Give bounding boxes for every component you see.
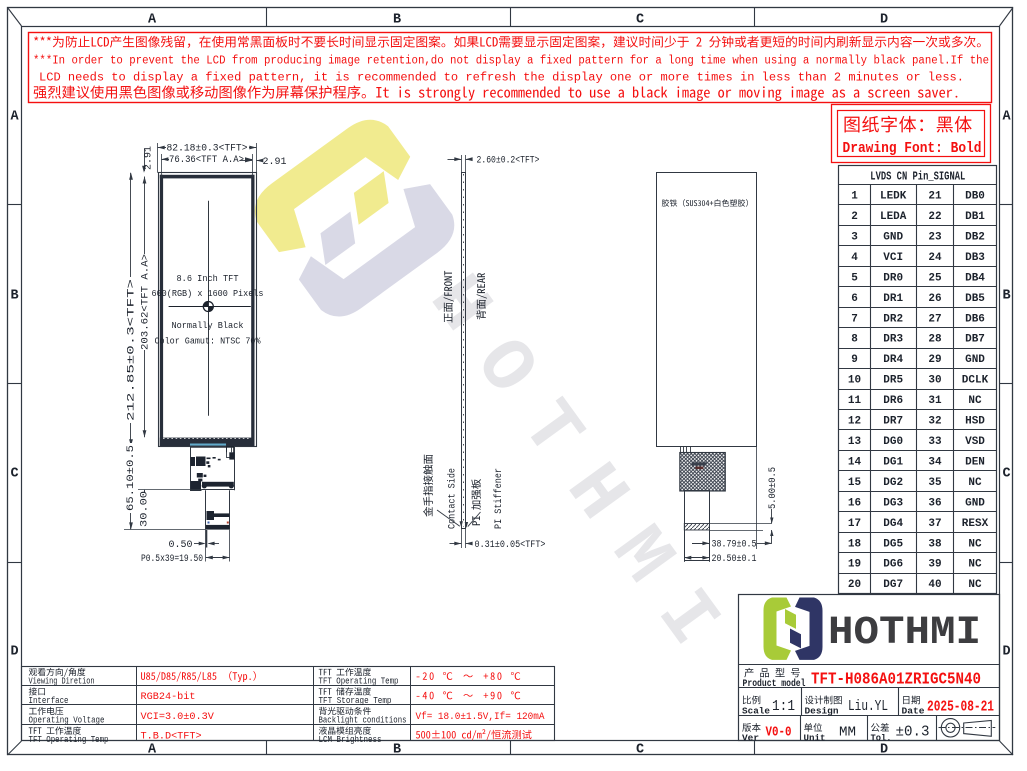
svg-text:DR5: DR5 xyxy=(883,375,903,387)
svg-text:PI Stiffener: PI Stiffener xyxy=(493,468,505,529)
svg-text:28: 28 xyxy=(928,334,942,346)
svg-text:22: 22 xyxy=(928,211,941,223)
svg-text:39: 39 xyxy=(928,559,941,571)
svg-text:NC: NC xyxy=(968,477,982,489)
svg-text:DB3: DB3 xyxy=(965,252,985,264)
svg-text:LCM Brightness: LCM Brightness xyxy=(319,735,382,745)
svg-text:76.36<TFT A.A>: 76.36<TFT A.A> xyxy=(169,155,244,166)
svg-text:38.79±0.5: 38.79±0.5 xyxy=(712,540,757,551)
svg-text:LEDA: LEDA xyxy=(880,211,907,223)
svg-text:Drawing Font: Bold: Drawing Font: Bold xyxy=(843,141,982,157)
svg-text:DG5: DG5 xyxy=(883,538,903,550)
svg-text:NC: NC xyxy=(968,559,982,571)
svg-text:37: 37 xyxy=(928,518,941,530)
svg-text:VSD: VSD xyxy=(965,436,985,448)
svg-text:5.00±0.5: 5.00±0.5 xyxy=(768,467,779,509)
svg-text:DR4: DR4 xyxy=(883,354,903,366)
svg-text:32: 32 xyxy=(928,416,941,428)
svg-text:***In order to prevent the LCD: ***In order to prevent the LCD from prod… xyxy=(33,55,989,68)
svg-text:A: A xyxy=(1002,110,1011,125)
svg-text:21: 21 xyxy=(928,191,942,203)
svg-text:TFT-H086A01ZRIGC5N40: TFT-H086A01ZRIGC5N40 xyxy=(811,670,981,689)
svg-text:DEN: DEN xyxy=(965,457,985,469)
svg-text:4: 4 xyxy=(851,252,858,264)
svg-text:2025-08-21: 2025-08-21 xyxy=(927,700,994,716)
svg-text:8: 8 xyxy=(851,334,858,346)
svg-text:1:1: 1:1 xyxy=(772,699,795,715)
svg-text:LEDK: LEDK xyxy=(880,191,907,203)
svg-text:0.50: 0.50 xyxy=(169,540,193,551)
svg-text:30: 30 xyxy=(928,375,941,387)
svg-text:DG0: DG0 xyxy=(883,436,903,448)
svg-text:Ver: Ver xyxy=(742,732,759,743)
svg-text:B: B xyxy=(1002,289,1010,304)
svg-text:82.18±0.3<TFT>: 82.18±0.3<TFT> xyxy=(167,144,248,155)
svg-text:DG6: DG6 xyxy=(883,559,903,571)
svg-text:DR1: DR1 xyxy=(883,293,903,305)
svg-text:0.31±0.05<TFT>: 0.31±0.05<TFT> xyxy=(475,540,546,551)
svg-text:DCLK: DCLK xyxy=(962,375,989,387)
svg-text:65.10±0.5: 65.10±0.5 xyxy=(126,445,137,511)
svg-text:10: 10 xyxy=(848,375,861,387)
svg-text:D: D xyxy=(10,645,18,660)
svg-text:25: 25 xyxy=(928,272,942,284)
svg-text:A: A xyxy=(10,110,19,125)
svg-text:DB1: DB1 xyxy=(965,211,985,223)
svg-text:8.6 Inch TFT: 8.6 Inch TFT xyxy=(177,274,240,284)
svg-text:NC: NC xyxy=(968,395,982,407)
svg-text:Design: Design xyxy=(805,706,839,717)
svg-text:40: 40 xyxy=(928,579,941,591)
svg-text:Contact Side: Contact Side xyxy=(447,468,459,529)
svg-text:TFT Operating Temp: TFT Operating Temp xyxy=(319,676,399,686)
svg-text:DB6: DB6 xyxy=(965,313,985,325)
svg-text:Interface: Interface xyxy=(29,696,69,706)
svg-text:Product model: Product model xyxy=(743,678,806,690)
svg-text:14: 14 xyxy=(848,457,862,469)
svg-text:GND: GND xyxy=(965,354,985,366)
svg-text:TFT Operating Temp: TFT Operating Temp xyxy=(29,735,109,745)
svg-text:19: 19 xyxy=(848,559,861,571)
svg-text:27: 27 xyxy=(928,313,941,325)
svg-text:V0-0: V0-0 xyxy=(766,726,792,741)
svg-text:DG3: DG3 xyxy=(883,497,903,509)
svg-text:DG2: DG2 xyxy=(883,477,903,489)
svg-text:C: C xyxy=(636,743,644,758)
svg-text:600(RGB) x 1600 Pixels: 600(RGB) x 1600 Pixels xyxy=(152,289,264,299)
svg-text:18: 18 xyxy=(848,538,862,550)
svg-text:23: 23 xyxy=(928,232,942,244)
svg-text:DR6: DR6 xyxy=(883,395,903,407)
svg-text:Vf= 18.0±1.5V,If= 120mA: Vf= 18.0±1.5V,If= 120mA xyxy=(416,711,546,723)
svg-text:31: 31 xyxy=(928,395,942,407)
svg-text:DB0: DB0 xyxy=(965,191,985,203)
svg-text:11: 11 xyxy=(848,395,862,407)
svg-text:B: B xyxy=(393,743,401,758)
svg-text:GND: GND xyxy=(965,497,985,509)
svg-text:1: 1 xyxy=(851,191,858,203)
svg-text:P0.5x39=19.50: P0.5x39=19.50 xyxy=(141,554,203,565)
svg-text:17: 17 xyxy=(848,518,861,530)
svg-text:VCI: VCI xyxy=(883,252,903,264)
svg-text:16: 16 xyxy=(848,497,861,509)
svg-text:B: B xyxy=(393,13,401,28)
svg-text:VCI=3.0±0.3V: VCI=3.0±0.3V xyxy=(141,712,215,723)
svg-text:12: 12 xyxy=(848,416,861,428)
svg-text:DG4: DG4 xyxy=(883,518,903,530)
svg-text:Backlight conditions: Backlight conditions xyxy=(319,715,407,725)
svg-text:DB5: DB5 xyxy=(965,293,985,305)
svg-text:HOTHMI: HOTHMI xyxy=(828,611,981,656)
svg-text:7: 7 xyxy=(851,313,858,325)
svg-text:±0.3: ±0.3 xyxy=(896,725,930,741)
svg-text:DR3: DR3 xyxy=(883,334,903,346)
svg-text:DR2: DR2 xyxy=(883,313,903,325)
svg-text:Color Gamut: NTSC 70%: Color Gamut: NTSC 70% xyxy=(155,337,262,347)
svg-text:D: D xyxy=(880,743,888,758)
svg-text:35: 35 xyxy=(928,477,942,489)
svg-text:GND: GND xyxy=(883,232,903,244)
svg-text:A: A xyxy=(148,743,157,758)
svg-text:203.62<TFT A.A>: 203.62<TFT A.A> xyxy=(141,254,152,350)
svg-text:A: A xyxy=(148,13,157,28)
svg-text:Liu.YL: Liu.YL xyxy=(848,699,888,715)
svg-text:34: 34 xyxy=(928,457,942,469)
svg-text:TFT Storage Temp: TFT Storage Temp xyxy=(319,696,392,706)
svg-text:DB2: DB2 xyxy=(965,232,985,244)
svg-text:20.50±0.1: 20.50±0.1 xyxy=(712,554,757,565)
svg-text:36: 36 xyxy=(928,497,941,509)
svg-text:D: D xyxy=(880,13,888,28)
svg-text:NC: NC xyxy=(968,538,982,550)
svg-text:Viewing Diretion: Viewing Diretion xyxy=(29,676,95,686)
svg-text:33: 33 xyxy=(928,436,942,448)
svg-text:2: 2 xyxy=(851,211,858,223)
svg-text:DB4: DB4 xyxy=(965,272,985,284)
svg-text:2.60±0.2<TFT>: 2.60±0.2<TFT> xyxy=(477,156,540,167)
svg-text:HSD: HSD xyxy=(965,416,985,428)
svg-text:Tol.: Tol. xyxy=(871,732,892,743)
svg-text:26: 26 xyxy=(928,293,941,305)
svg-text:T.B.D<TFT>: T.B.D<TFT> xyxy=(141,731,202,742)
svg-text:DR7: DR7 xyxy=(883,416,903,428)
svg-text:B: B xyxy=(10,289,18,304)
svg-text:24: 24 xyxy=(928,252,942,264)
svg-text:D: D xyxy=(1002,645,1010,660)
svg-text:2.91: 2.91 xyxy=(144,146,155,170)
svg-text:NC: NC xyxy=(968,579,982,591)
svg-text:20: 20 xyxy=(848,579,861,591)
svg-text:DR0: DR0 xyxy=(883,272,903,284)
svg-text:MM: MM xyxy=(839,726,856,741)
svg-text:RESX: RESX xyxy=(962,518,989,530)
svg-text:212.85±0.3<TFT>: 212.85±0.3<TFT> xyxy=(127,279,138,421)
svg-text:29: 29 xyxy=(928,354,941,366)
svg-text:RGB24-bit: RGB24-bit xyxy=(141,691,196,703)
svg-text:3: 3 xyxy=(851,232,858,244)
svg-text:Normally Black: Normally Black xyxy=(172,321,244,331)
svg-text:6: 6 xyxy=(851,293,858,305)
svg-text:DG1: DG1 xyxy=(883,457,903,469)
svg-text:C: C xyxy=(10,467,18,482)
svg-text:Date: Date xyxy=(902,706,925,717)
svg-text:Scale: Scale xyxy=(742,706,770,717)
svg-text:13: 13 xyxy=(848,436,862,448)
svg-text:38: 38 xyxy=(928,538,942,550)
svg-text:DB7: DB7 xyxy=(965,334,985,346)
svg-text:2.91: 2.91 xyxy=(263,157,287,168)
svg-text:C: C xyxy=(636,13,644,28)
svg-text:30.00: 30.00 xyxy=(140,491,151,527)
svg-text:C: C xyxy=(1002,467,1010,482)
svg-text:15: 15 xyxy=(848,477,862,489)
svg-text:LCD needs to display a fixed p: LCD needs to display a fixed pattern, it… xyxy=(39,72,964,85)
svg-text:Operating Voltage: Operating Voltage xyxy=(29,715,105,725)
svg-text:Unit: Unit xyxy=(804,732,826,743)
svg-text:LVDS CN Pin_SIGNAL: LVDS CN Pin_SIGNAL xyxy=(870,171,965,184)
svg-text:5: 5 xyxy=(851,272,858,284)
svg-text:9: 9 xyxy=(851,354,858,366)
svg-text:DG7: DG7 xyxy=(883,579,903,591)
